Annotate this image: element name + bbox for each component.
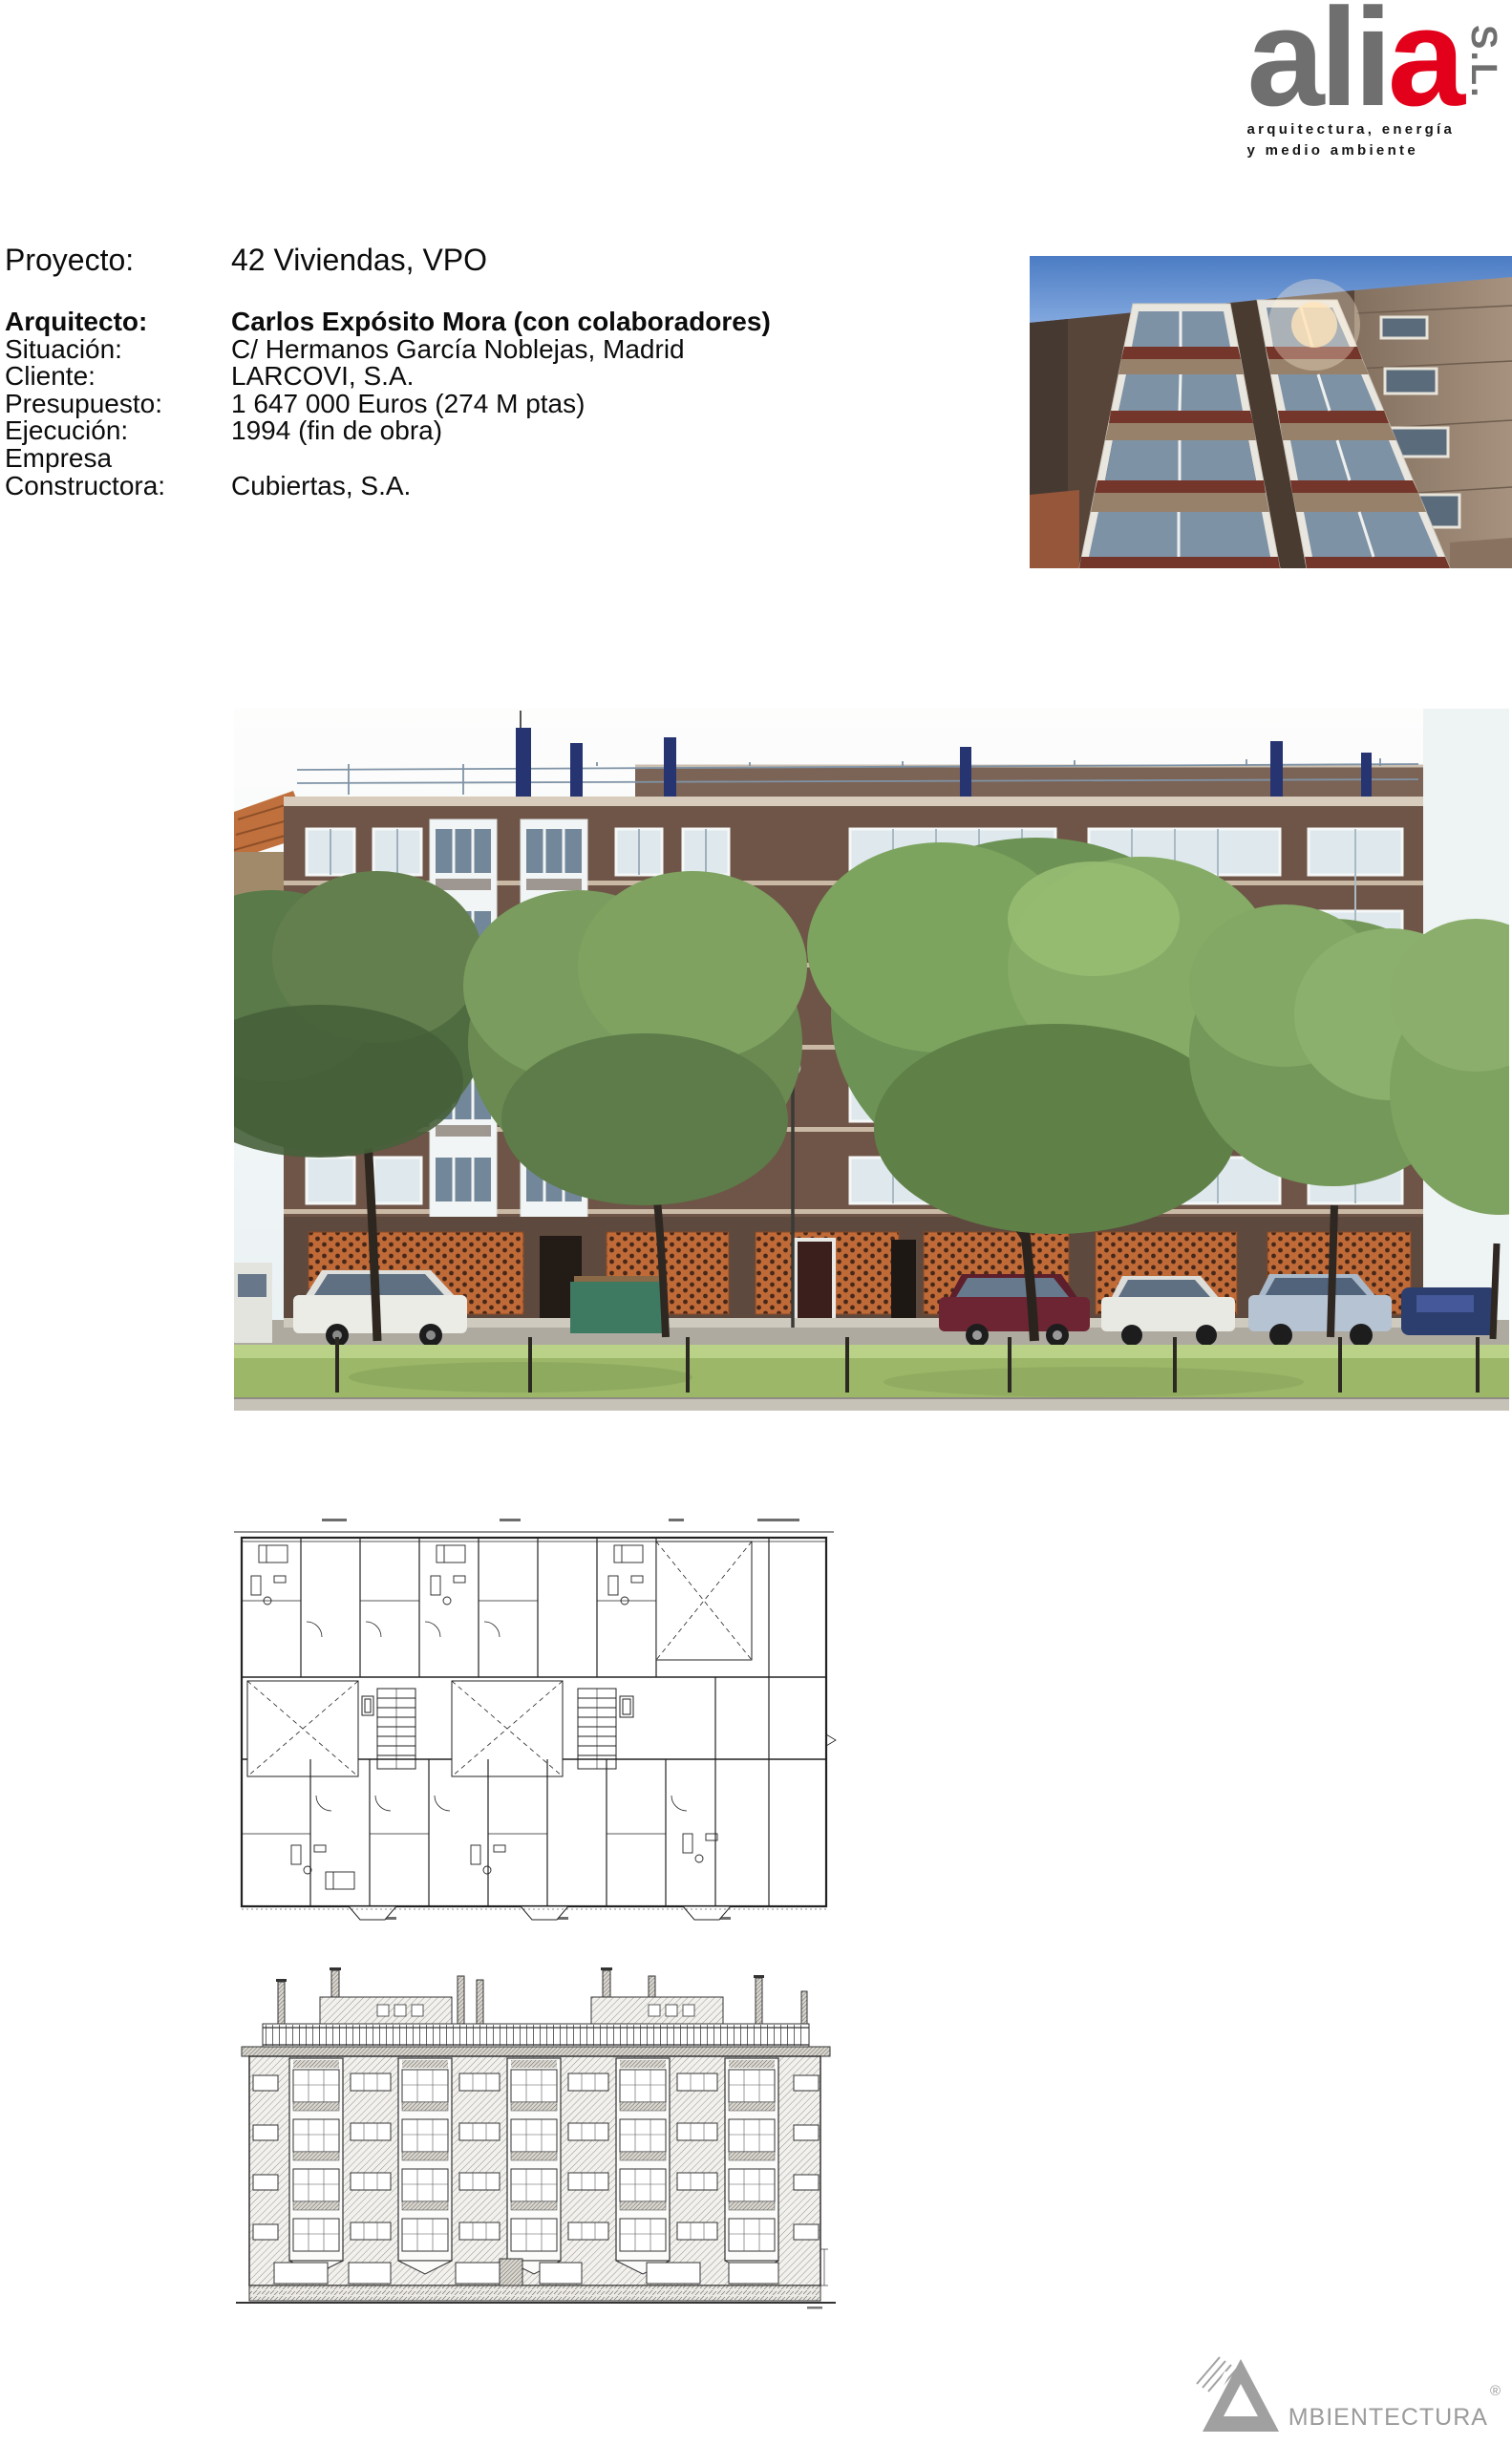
row-label: Presupuesto: xyxy=(5,391,231,418)
floor-plan-drawing xyxy=(234,1509,841,1922)
row-label: Constructora: xyxy=(5,473,231,500)
row-label: Empresa xyxy=(5,445,231,473)
alia-tagline-line1: arquitectura, energía xyxy=(1246,119,1455,140)
alia-wordmark-gray: ali xyxy=(1246,0,1387,135)
ambientectura-text: MBIENTECTURA xyxy=(1288,2406,1488,2430)
elevation-drawing xyxy=(236,1963,836,2314)
project-row: Presupuesto:1 647 000 Euros (274 M ptas) xyxy=(5,391,979,418)
ambientectura-logo: MBIENTECTURA ® xyxy=(1191,2355,1501,2435)
project-title-value: 42 Viviendas, VPO xyxy=(231,243,487,277)
alia-tagline: arquitectura, energía y medio ambiente xyxy=(1246,119,1455,161)
row-label: Ejecución: xyxy=(5,417,231,445)
project-row: Arquitecto:Carlos Expósito Mora (con col… xyxy=(5,308,979,336)
page: { "page": { "background": "#ffffff" }, "… xyxy=(0,0,1512,2445)
floor-plan-figure xyxy=(234,1509,841,1922)
row-value: C/ Hermanos García Noblejas, Madrid xyxy=(231,334,685,364)
project-title-label: Proyecto: xyxy=(5,242,231,278)
main-photo-figure xyxy=(234,709,1509,1411)
alia-suffix: S.L. xyxy=(1460,4,1506,161)
row-value: Cubiertas, S.A. xyxy=(231,471,411,500)
row-value: 1 647 000 Euros (274 M ptas) xyxy=(231,389,585,418)
project-row: Cliente:LARCOVI, S.A. xyxy=(5,363,979,391)
project-row: Empresa xyxy=(5,445,979,473)
elevation-figure xyxy=(236,1963,836,2314)
project-title-row: Proyecto:42 Viviendas, VPO xyxy=(5,242,979,278)
main-photo xyxy=(234,709,1509,1411)
facade-photo xyxy=(1030,256,1512,568)
facade-photo-figure xyxy=(1030,256,1512,568)
alia-wordmark-red: a xyxy=(1388,0,1460,135)
alia-logo: alia arquitectura, energía y medio ambie… xyxy=(1246,4,1506,161)
project-row: Constructora:Cubiertas, S.A. xyxy=(5,473,979,500)
row-label: Arquitecto: xyxy=(5,308,231,336)
row-value: 1994 (fin de obra) xyxy=(231,415,442,445)
project-row: Ejecución:1994 (fin de obra) xyxy=(5,417,979,445)
project-row: Situación:C/ Hermanos García Noblejas, M… xyxy=(5,336,979,364)
row-label: Cliente: xyxy=(5,363,231,391)
project-info: Proyecto:42 Viviendas, VPO Arquitecto:Ca… xyxy=(5,242,979,500)
row-value: Carlos Expósito Mora (con colaboradores) xyxy=(231,307,771,336)
row-value: LARCOVI, S.A. xyxy=(231,361,414,391)
registered-mark: ® xyxy=(1490,2383,1501,2399)
ambientectura-triangle-icon xyxy=(1191,2355,1287,2435)
alia-wordmark: alia xyxy=(1246,4,1460,111)
row-label: Situación: xyxy=(5,336,231,364)
alia-tagline-line2: y medio ambiente xyxy=(1246,140,1455,161)
